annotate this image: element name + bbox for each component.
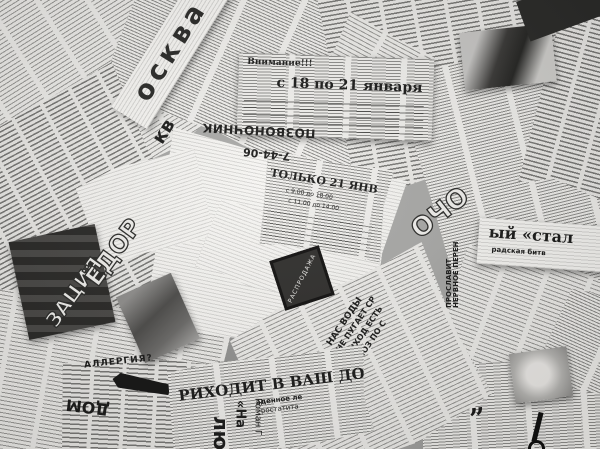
rasprodazha-label: РАСПРОДАЖА — [287, 252, 318, 303]
headline-vnimanie: Внимание!!! — [247, 58, 313, 70]
headline-dom-inverted: ДОМ — [65, 395, 111, 417]
newspaper-collage-photo: осква кв Внимание!!! с 18 по 21 января Н… — [0, 0, 600, 449]
headline-date-range: с 18 по 21 января — [276, 76, 423, 96]
vertical-na: «На — [233, 400, 247, 428]
stalingrad-headline-scrap: ый «стал радская битв — [477, 218, 600, 273]
vertical-lyu: лю — [210, 416, 231, 449]
headline-bitva: радская битв — [491, 247, 546, 258]
vertical-roman: Роман Г — [252, 398, 261, 435]
vertical-headline-pair: ПРОСЛАВИТ НЕРВНОЕ ПЕРЕН — [446, 248, 474, 308]
headline-nervnoe: НЕРВНОЕ ПЕРЕН — [453, 248, 460, 308]
headline-stal: ый «стал — [488, 224, 574, 247]
teapot-photo-clipping — [509, 346, 573, 404]
